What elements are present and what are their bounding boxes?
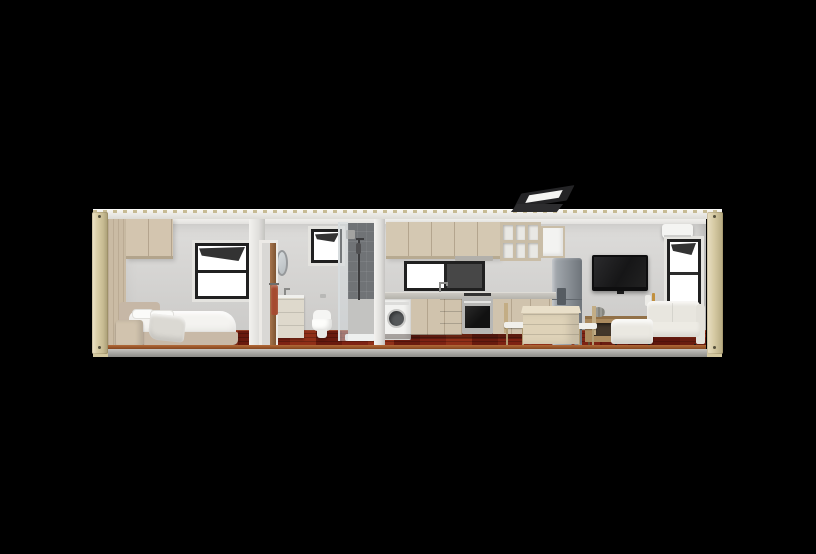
drawer-stack (440, 299, 462, 335)
container-corner-post-right (707, 212, 723, 354)
tv-mount (617, 291, 624, 294)
open-pane (446, 264, 482, 288)
open-shelving (500, 222, 541, 261)
chair-leg (506, 328, 508, 345)
post-bolt (713, 346, 716, 349)
post-bolt (713, 215, 716, 218)
shower-tray (345, 334, 375, 341)
throw-blanket (148, 313, 187, 343)
oven-door (465, 306, 490, 328)
partition-wall-bathroom-kitchen (374, 215, 385, 349)
tv-screen (594, 257, 646, 287)
shower-glass-screen (338, 222, 348, 341)
nightstand (116, 320, 143, 347)
window-mullion (198, 270, 246, 273)
air-conditioner-vent (664, 235, 691, 237)
shower-handset (356, 243, 361, 254)
washing-machine-controls (384, 302, 409, 305)
end-window (667, 239, 701, 308)
chair-leg (592, 329, 594, 345)
post-bolt (98, 215, 101, 218)
kitchen-window (404, 261, 485, 291)
open-sash (671, 243, 696, 255)
window-mullion (670, 272, 698, 275)
container-bottom-rail (93, 349, 722, 357)
skylight-curb (511, 204, 563, 212)
dining-table-top (521, 306, 581, 313)
roof-corrugation (93, 210, 722, 213)
container-roof (93, 209, 722, 219)
open-sash (199, 247, 245, 261)
render-canvas (0, 0, 816, 554)
bedroom-window (195, 243, 249, 299)
sink-faucet (439, 282, 441, 292)
open-sash (315, 233, 339, 242)
power-outlet (320, 294, 326, 298)
upper-cabinets (386, 222, 500, 259)
sofa-cushion-seam (672, 303, 673, 323)
dining-table (523, 313, 579, 344)
cooktop (464, 293, 491, 296)
wall-cabinet (541, 226, 565, 258)
shower-tile-lower (348, 299, 374, 336)
oven-handle (464, 301, 491, 303)
washing-machine-door (387, 309, 406, 328)
vanity-unit (277, 295, 304, 338)
overhead-cabinet (126, 218, 173, 259)
post-bolt (98, 346, 101, 349)
sofa-chaise (611, 319, 653, 344)
container-corner-post-left (92, 212, 108, 354)
refrigerator-dispenser (557, 288, 566, 305)
towel (271, 285, 278, 315)
toilet-pedestal (317, 329, 327, 338)
